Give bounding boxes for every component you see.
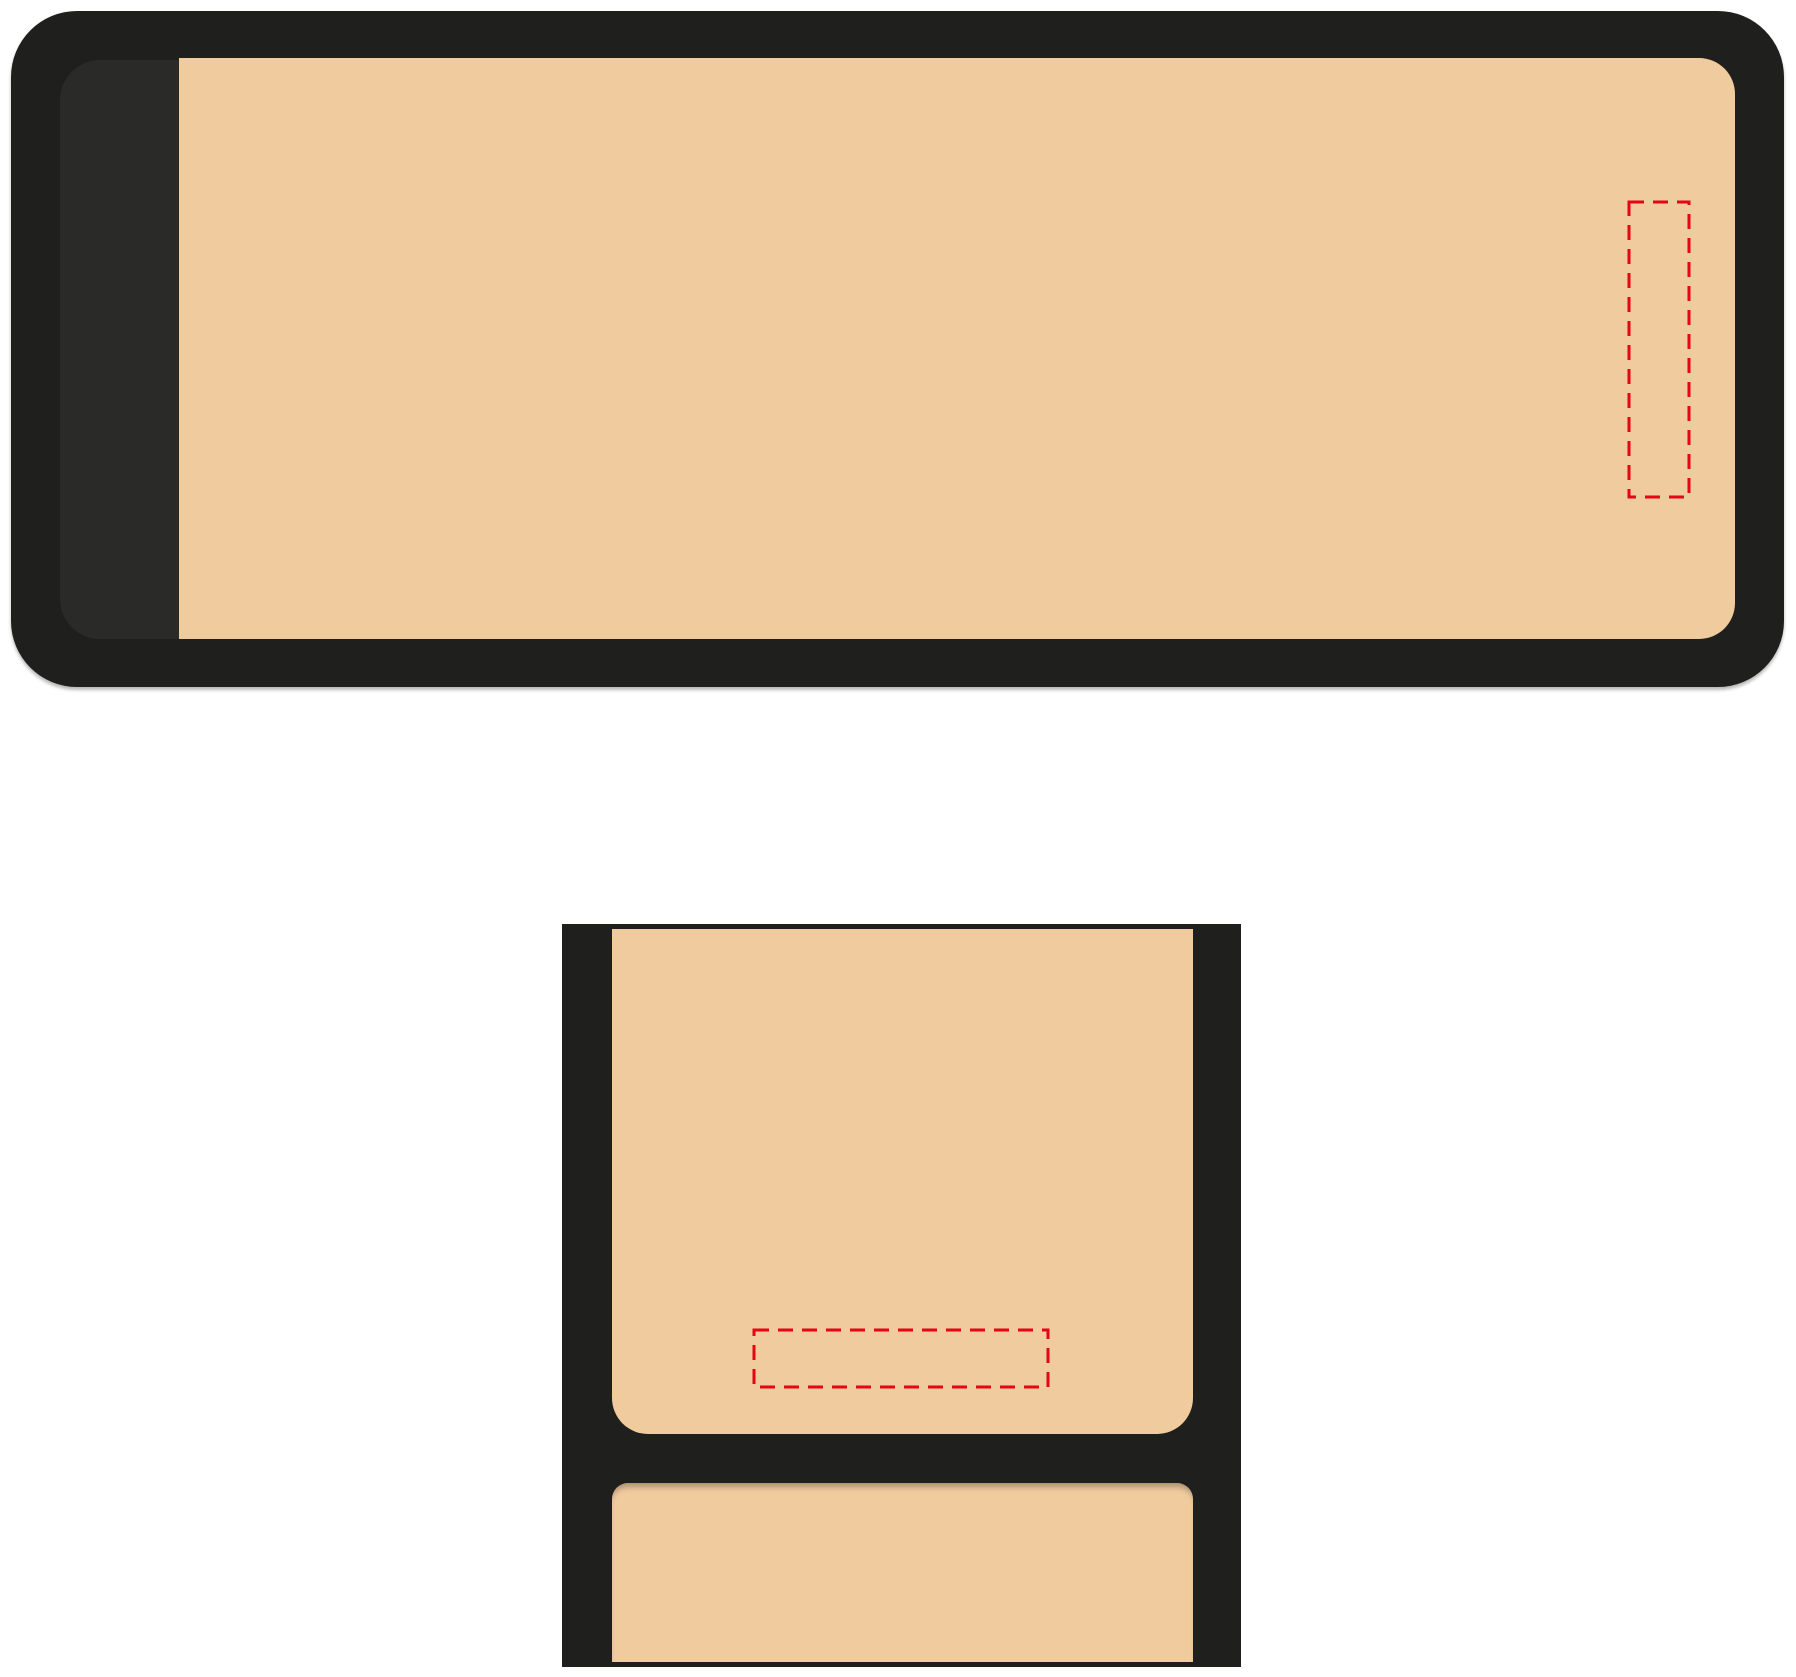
diagram-canvas	[0, 0, 1796, 1677]
front-view-body-panel	[612, 1483, 1193, 1662]
print-area-outline-icon	[754, 1330, 1048, 1387]
print-area-outline-icon	[1629, 202, 1689, 497]
top-view-fabric-panel	[179, 58, 1735, 639]
front-view-print-area	[751, 1327, 1051, 1390]
top-view-print-area	[1626, 199, 1692, 500]
